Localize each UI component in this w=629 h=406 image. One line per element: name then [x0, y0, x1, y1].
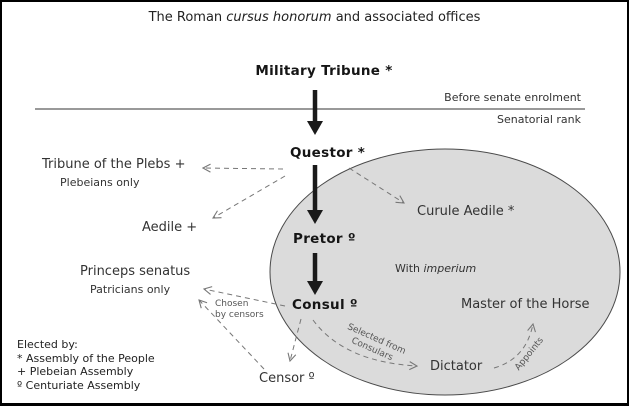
- arrow-questor-to-tribune-of-plebs: [203, 168, 283, 169]
- node-dictator: Dictator: [430, 359, 482, 374]
- sublabel-plebeians-only: Plebeians only: [60, 176, 139, 189]
- title-italic-text: cursus honorum: [226, 10, 331, 25]
- node-questor: Questor *: [290, 145, 365, 161]
- legend-item: º Centuriate Assembly: [17, 379, 155, 393]
- node-military-tribune: Military Tribune *: [224, 63, 424, 79]
- legend-item: * Assembly of the People: [17, 352, 155, 366]
- arrow-questor-to-aedile: [213, 176, 285, 218]
- chosen-line1: Chosen: [215, 299, 264, 310]
- sublabel-patricians-only: Patricians only: [90, 283, 170, 296]
- diagram-title: The Roman cursus honorum and associated …: [2, 10, 627, 25]
- node-tribune-of-the-plebs: Tribune of the Plebs +: [42, 157, 185, 172]
- node-curule-aedile: Curule Aedile *: [417, 204, 514, 219]
- diagram-canvas: The Roman cursus honorum and associated …: [0, 0, 629, 406]
- node-aedile: Aedile +: [142, 220, 197, 235]
- label-before-senate-enrolment: Before senate enrolment: [444, 91, 581, 104]
- label-senatorial-rank: Senatorial rank: [497, 113, 581, 126]
- title-text: The Roman: [149, 10, 227, 25]
- label-chosen-by-censors: Chosen by censors: [215, 299, 264, 321]
- arrow-military-tribune-to-questor: [307, 90, 323, 135]
- node-consul: Consul º: [292, 297, 358, 313]
- chosen-line2: by censors: [215, 310, 264, 321]
- with-imperium-pre: With: [395, 262, 423, 275]
- node-master-of-the-horse: Master of the Horse: [461, 297, 590, 312]
- label-with-imperium: With imperium: [395, 262, 476, 275]
- with-imperium-italic: imperium: [423, 262, 476, 275]
- node-princeps-senatus: Princeps senatus: [80, 264, 190, 279]
- legend-item: + Plebeian Assembly: [17, 365, 155, 379]
- node-pretor: Pretor º: [293, 231, 356, 247]
- legend: Elected by: * Assembly of the People + P…: [17, 338, 155, 392]
- title-text-post: and associated offices: [332, 10, 481, 25]
- node-censor: Censor º: [259, 371, 315, 386]
- legend-title: Elected by:: [17, 338, 155, 352]
